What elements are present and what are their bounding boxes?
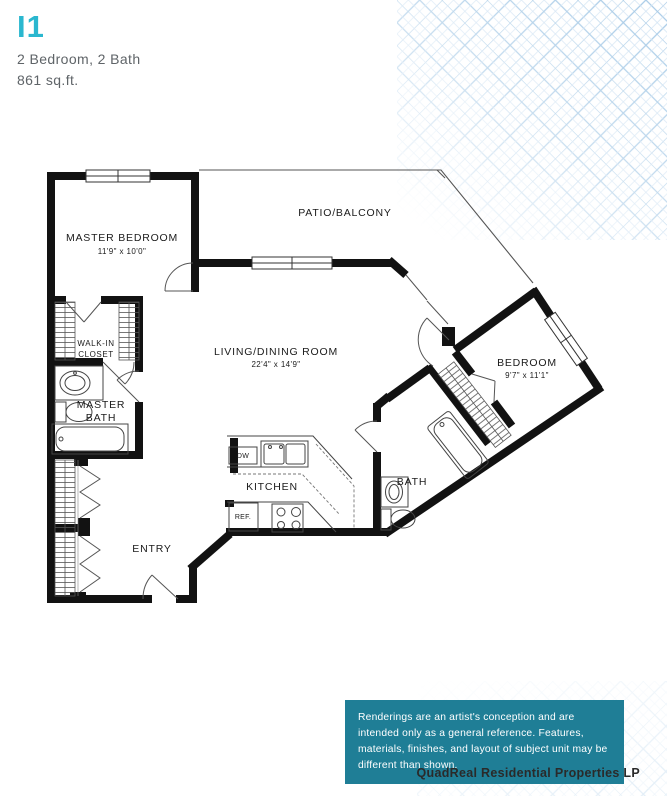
walkin-closet-rod-left [55,302,75,360]
walkin-closet-label: WALK-IN CLOSET [77,339,114,359]
kitchen-stove [272,504,303,532]
disclaimer-text: Renderings are an artist's conception an… [358,712,607,771]
svg-text:PATIO/BALCONY: PATIO/BALCONY [298,207,391,219]
patio-label: PATIO/BALCONY [298,207,391,219]
svg-text:MASTER BEDROOM: MASTER BEDROOM [66,232,178,244]
company-footer: QuadReal Residential Properties LP [417,766,640,780]
walkin-closet-rod-right [119,302,139,360]
svg-text:REF.: REF. [235,514,251,521]
bedroom-label: BEDROOM 9'7" x 11'1" [497,357,557,380]
entry-label: ENTRY [132,543,171,555]
svg-text:DW: DW [237,453,249,460]
svg-text:MASTER: MASTER [77,399,126,411]
svg-text:BATH: BATH [86,412,116,424]
closet-hall-door [103,362,134,384]
living-dining-label: LIVING/DINING ROOM 22'4" x 14'9" [214,346,338,369]
bath-label: BATH [397,476,427,488]
windows [86,170,587,366]
svg-text:BATH: BATH [397,476,427,488]
bath-door [355,421,377,452]
patio-door [406,275,448,324]
kitchen-sink [261,441,308,467]
master-bath-tub [52,424,128,454]
svg-text:CLOSET: CLOSET [78,350,114,359]
plan-specs: 2 Bedroom, 2 Bath [17,51,141,67]
plan-area: 861 sq.ft. [17,72,141,88]
master-bedroom-door [165,263,193,291]
svg-text:ENTRY: ENTRY [132,543,171,555]
svg-text:KITCHEN: KITCHEN [246,481,298,493]
plan-header: I1 2 Bedroom, 2 Bath 861 sq.ft. [17,10,141,88]
master-bedroom-window [86,170,150,182]
svg-text:WALK-IN: WALK-IN [77,339,114,348]
svg-text:9'7" x 11'1": 9'7" x 11'1" [505,371,549,380]
floorplan-drawing: MASTER BEDROOM 11'9" x 10'0" PATIO/BALCO… [0,0,667,796]
svg-text:LIVING/DINING ROOM: LIVING/DINING ROOM [214,346,338,358]
svg-text:BEDROOM: BEDROOM [497,357,557,369]
master-bath-door [117,371,139,402]
svg-text:22'4" x 14'9": 22'4" x 14'9" [251,360,300,369]
plan-code: I1 [17,10,141,44]
living-room-window [252,257,332,269]
floorplan-page: { "header": { "plan_code": "I1", "specs"… [0,0,667,796]
master-bath-sink [55,366,103,400]
master-bedroom-label: MASTER BEDROOM 11'9" x 10'0" [66,232,178,256]
master-bath-label: MASTER BATH [77,399,126,424]
entry-closet-shelf [55,460,78,596]
kitchen-label: KITCHEN [246,481,298,493]
svg-text:11'9" x 10'0": 11'9" x 10'0" [98,247,146,256]
